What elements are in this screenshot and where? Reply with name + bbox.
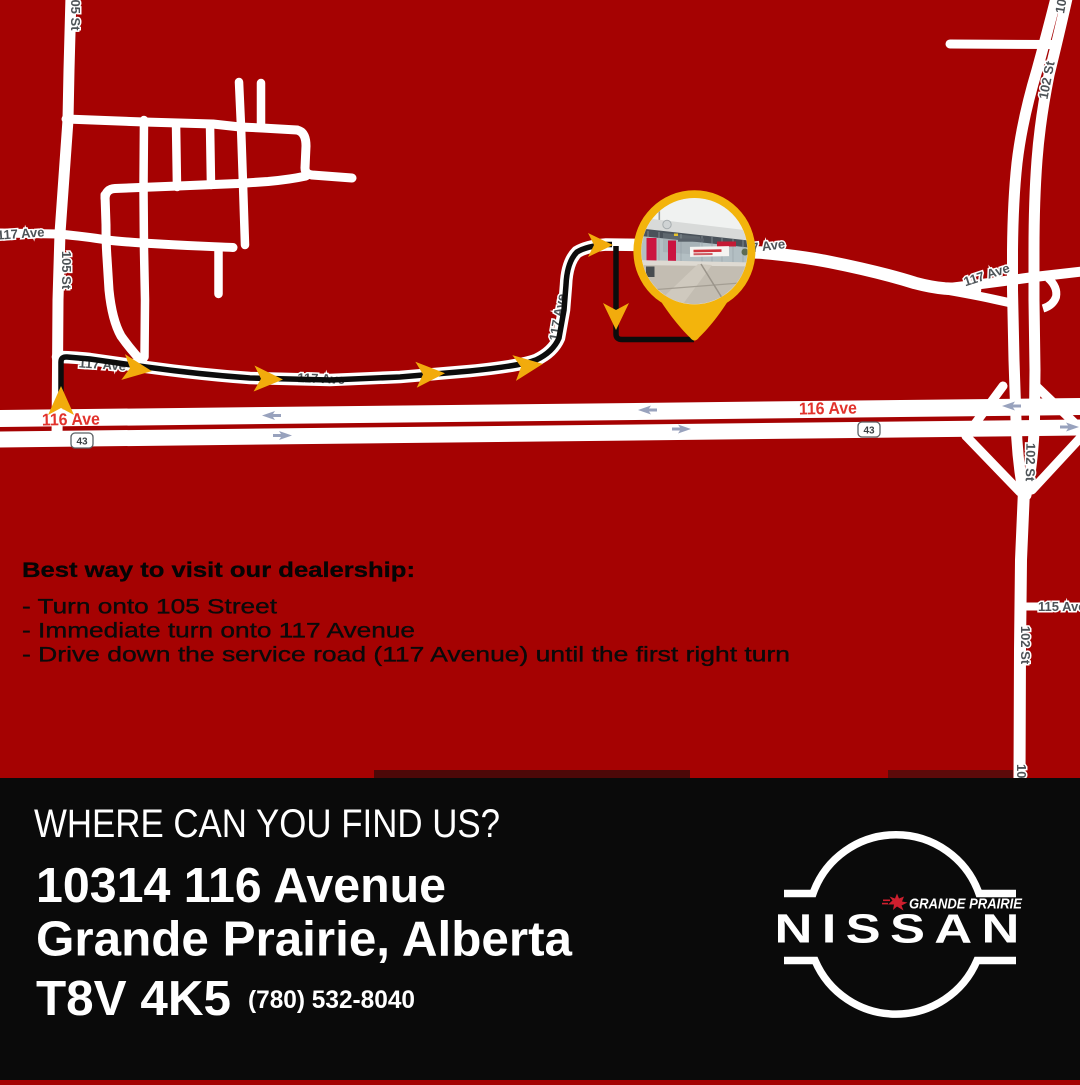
svg-text:43: 43 [863,426,875,437]
svg-text:T8V 4K5: T8V 4K5 [36,972,231,1026]
svg-text:- Drive down the service road: - Drive down the service road (117 Avenu… [22,644,790,667]
svg-text:43: 43 [76,437,88,448]
svg-text:(780) 532-8040: (780) 532-8040 [248,986,415,1014]
svg-text:10314 116 Avenue: 10314 116 Avenue [36,859,446,913]
svg-text:102 St: 102 St [1023,443,1039,482]
svg-text:GRANDE PRAIRIE: GRANDE PRAIRIE [909,897,1023,913]
svg-text:115 Ave: 115 Ave [1038,599,1080,614]
svg-text:- Turn onto 105 Street: - Turn onto 105 Street [22,596,277,619]
svg-text:Grande Prairie, Alberta: Grande Prairie, Alberta [36,913,573,967]
svg-text:105 St: 105 St [59,251,74,290]
svg-text:Best way to visit our dealersh: Best way to visit our dealership: [22,558,415,582]
svg-text:116 Ave: 116 Ave [799,398,857,418]
svg-text:WHERE CAN YOU FIND US?: WHERE CAN YOU FIND US? [34,802,500,846]
svg-text:- Immediate turn onto 117 Aven: - Immediate turn onto 117 Avenue [22,620,415,643]
svg-text:05 St: 05 St [68,0,83,31]
svg-text:102 St: 102 St [1018,626,1033,665]
